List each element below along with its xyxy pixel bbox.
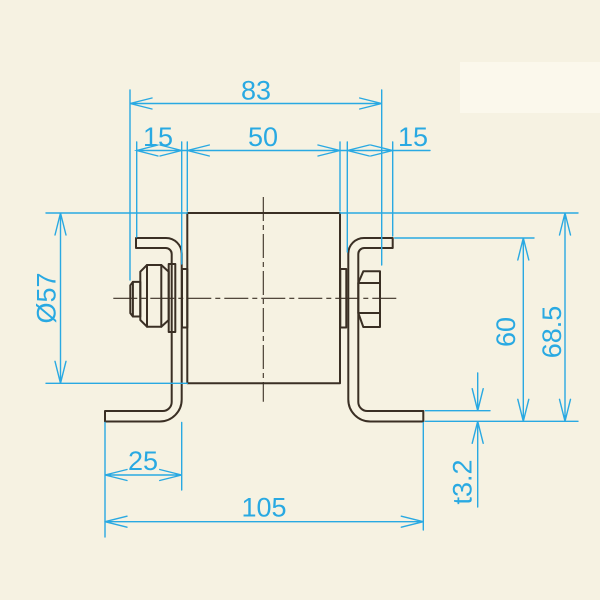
technical-drawing-page: 83 15 50 15 Ø57 60 68.5 t3.2 25 105 xyxy=(0,0,600,600)
dim-15-left-label: 15 xyxy=(143,122,173,152)
dim-68-5-label: 68.5 xyxy=(537,306,567,359)
drawing-canvas: 83 15 50 15 Ø57 60 68.5 t3.2 25 105 xyxy=(0,0,600,600)
dim-15-right-label: 15 xyxy=(398,122,428,152)
dim-50-label: 50 xyxy=(248,122,278,152)
dim-25-label: 25 xyxy=(128,446,158,476)
dim-83-label: 83 xyxy=(241,76,271,106)
dim-60-label: 60 xyxy=(491,317,521,347)
dim-t32-label: t3.2 xyxy=(448,459,478,504)
dim-d57-label: Ø57 xyxy=(32,272,62,323)
dim-105-label: 105 xyxy=(241,493,286,523)
paper-light-patch xyxy=(460,62,600,113)
